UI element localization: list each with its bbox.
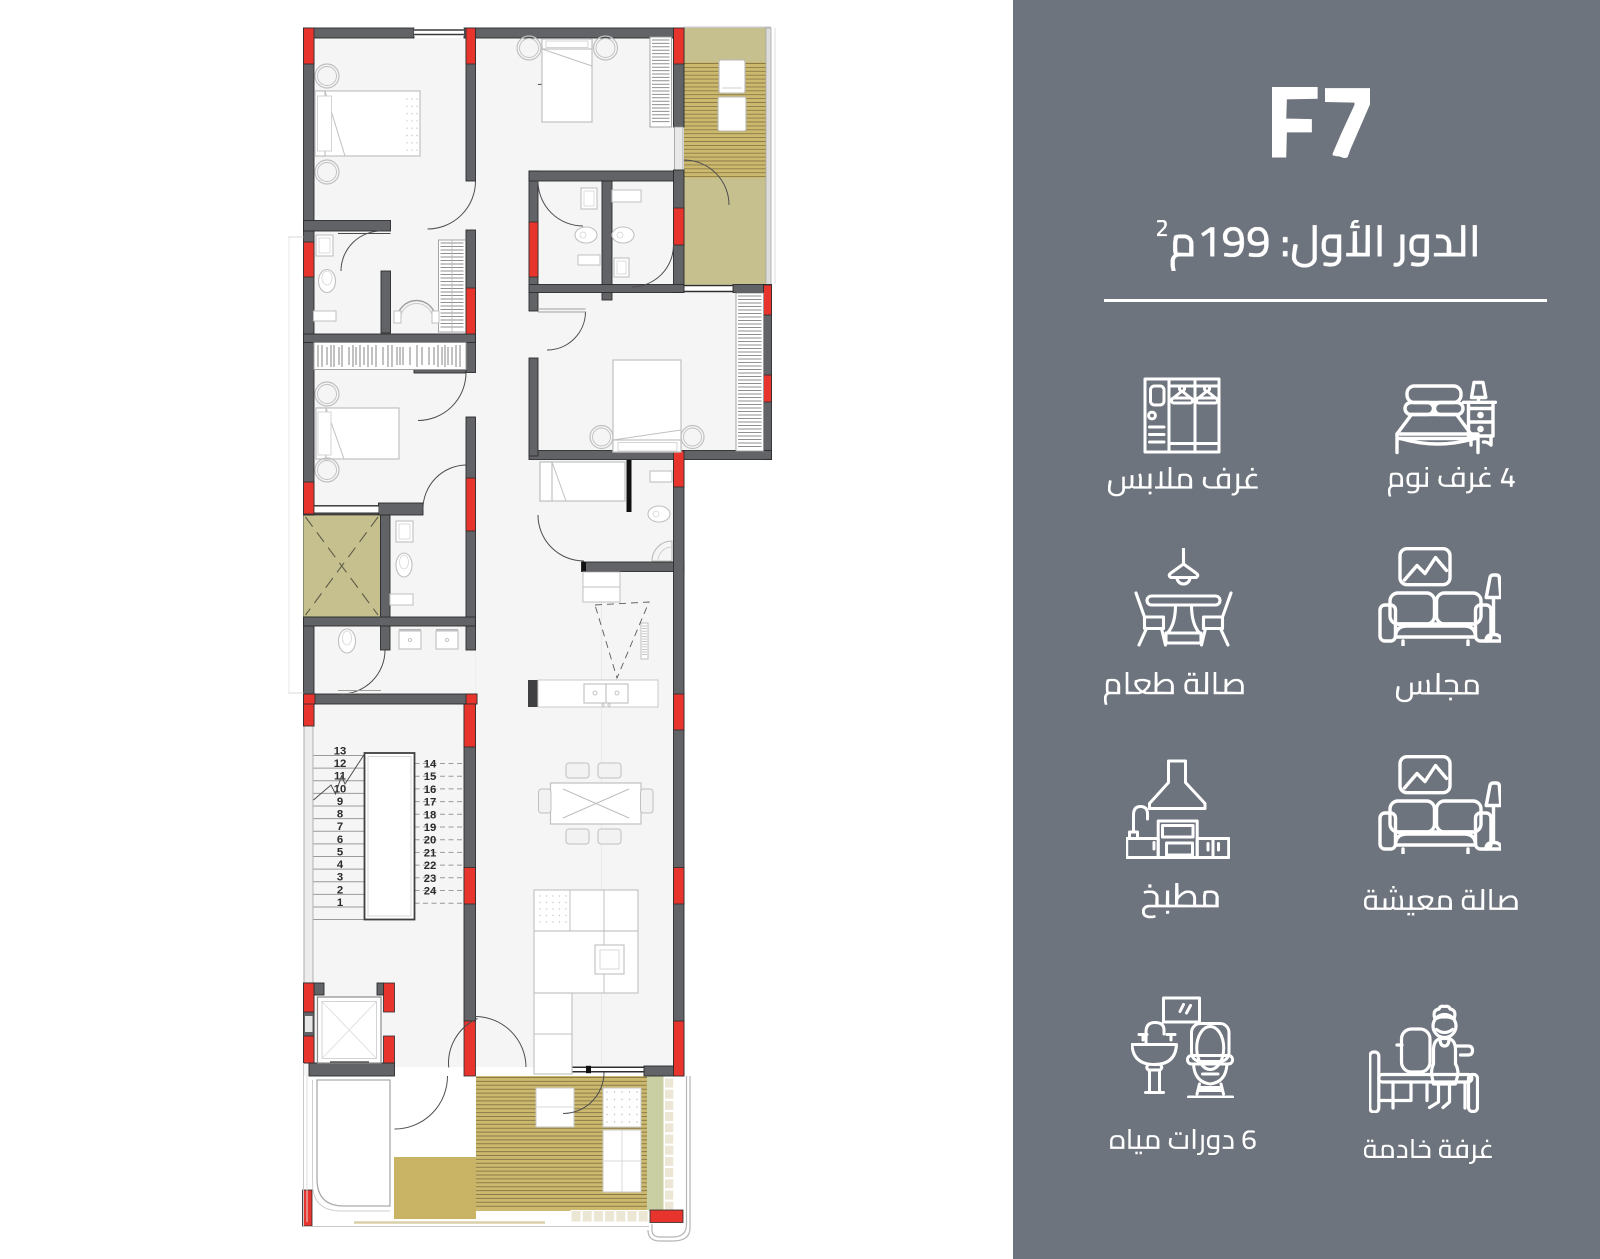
svg-text:20: 20 (424, 835, 437, 847)
svg-text:7: 7 (337, 821, 343, 833)
svg-text:13: 13 (334, 746, 347, 758)
svg-text:8: 8 (337, 809, 343, 821)
svg-text:5: 5 (337, 846, 343, 858)
svg-text:4: 4 (337, 859, 344, 871)
svg-text:17: 17 (424, 797, 437, 809)
svg-text:15: 15 (424, 771, 437, 783)
svg-text:1: 1 (337, 897, 343, 909)
svg-text:22: 22 (424, 860, 437, 872)
svg-text:12: 12 (334, 758, 347, 770)
svg-text:19: 19 (424, 822, 437, 834)
svg-text:6: 6 (337, 834, 343, 846)
svg-text:14: 14 (424, 759, 437, 771)
svg-text:16: 16 (424, 784, 437, 796)
svg-text:2: 2 (337, 884, 343, 896)
svg-text:18: 18 (424, 809, 437, 821)
svg-text:23: 23 (424, 873, 437, 885)
svg-text:3: 3 (337, 872, 343, 884)
svg-text:21: 21 (424, 847, 437, 859)
svg-text:9: 9 (337, 796, 343, 808)
svg-text:24: 24 (424, 886, 437, 898)
